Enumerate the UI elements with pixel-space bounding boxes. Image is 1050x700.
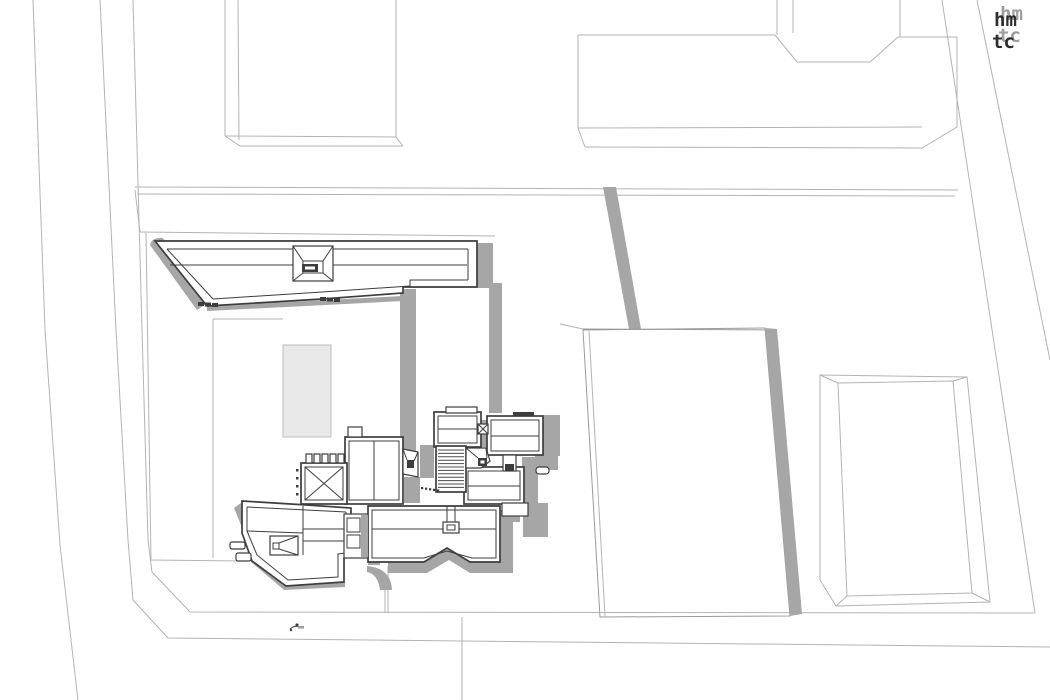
connector-skylight bbox=[478, 424, 488, 434]
sidewalk-top-2 bbox=[137, 194, 955, 196]
logo: hm tc hm tc bbox=[992, 3, 1023, 53]
parcel-bottom-left bbox=[151, 560, 242, 561]
south-wing-slot-box bbox=[443, 522, 459, 533]
parcel-top bbox=[140, 232, 495, 236]
parallelogram-roof bbox=[583, 328, 790, 617]
context-building-east bbox=[820, 375, 990, 606]
site-figure-marker bbox=[290, 623, 304, 631]
street-left-outer bbox=[33, 0, 78, 700]
tower-tab bbox=[348, 427, 362, 437]
stair-connector bbox=[344, 514, 368, 558]
funnel-skylight-3 bbox=[403, 449, 418, 477]
site-plan-page: hm tc hm tc bbox=[0, 0, 1050, 700]
vent-grill-row bbox=[306, 454, 344, 463]
funnel-skylight-2 bbox=[503, 455, 516, 471]
skylight-box-2 bbox=[487, 412, 543, 455]
pipe-west-1 bbox=[230, 542, 245, 549]
skylight-box-3 bbox=[464, 467, 524, 504]
east-extension-box bbox=[502, 503, 528, 516]
skylight-box-1 bbox=[434, 407, 481, 447]
parallelogram-shadow-band bbox=[765, 328, 802, 616]
wall-shadow-diagonal bbox=[603, 187, 641, 329]
terrace-panel bbox=[283, 345, 331, 437]
louver-panel bbox=[436, 446, 466, 492]
street-right-outer bbox=[942, 0, 1035, 613]
context-building-north bbox=[578, 0, 957, 148]
street-left-curb bbox=[100, 0, 1050, 647]
logo-row2: tc bbox=[992, 31, 1015, 53]
pipe-east bbox=[536, 467, 549, 474]
neighbor-parcel-block bbox=[583, 187, 802, 617]
neighbor-parcel-tick bbox=[560, 324, 583, 329]
pipe-west-2 bbox=[236, 553, 251, 561]
south-wing-roof bbox=[368, 506, 500, 562]
north-wing-skylight bbox=[293, 246, 333, 281]
context-building-northwest bbox=[225, 0, 403, 146]
x-skylight bbox=[296, 463, 347, 504]
sidewalk-top-1 bbox=[135, 187, 958, 190]
funnel-skylight-1 bbox=[466, 448, 490, 468]
site-plan-drawing: hm tc hm tc bbox=[0, 0, 1050, 700]
southwest-skylight bbox=[270, 536, 298, 555]
logo-row1: hm bbox=[994, 9, 1017, 31]
